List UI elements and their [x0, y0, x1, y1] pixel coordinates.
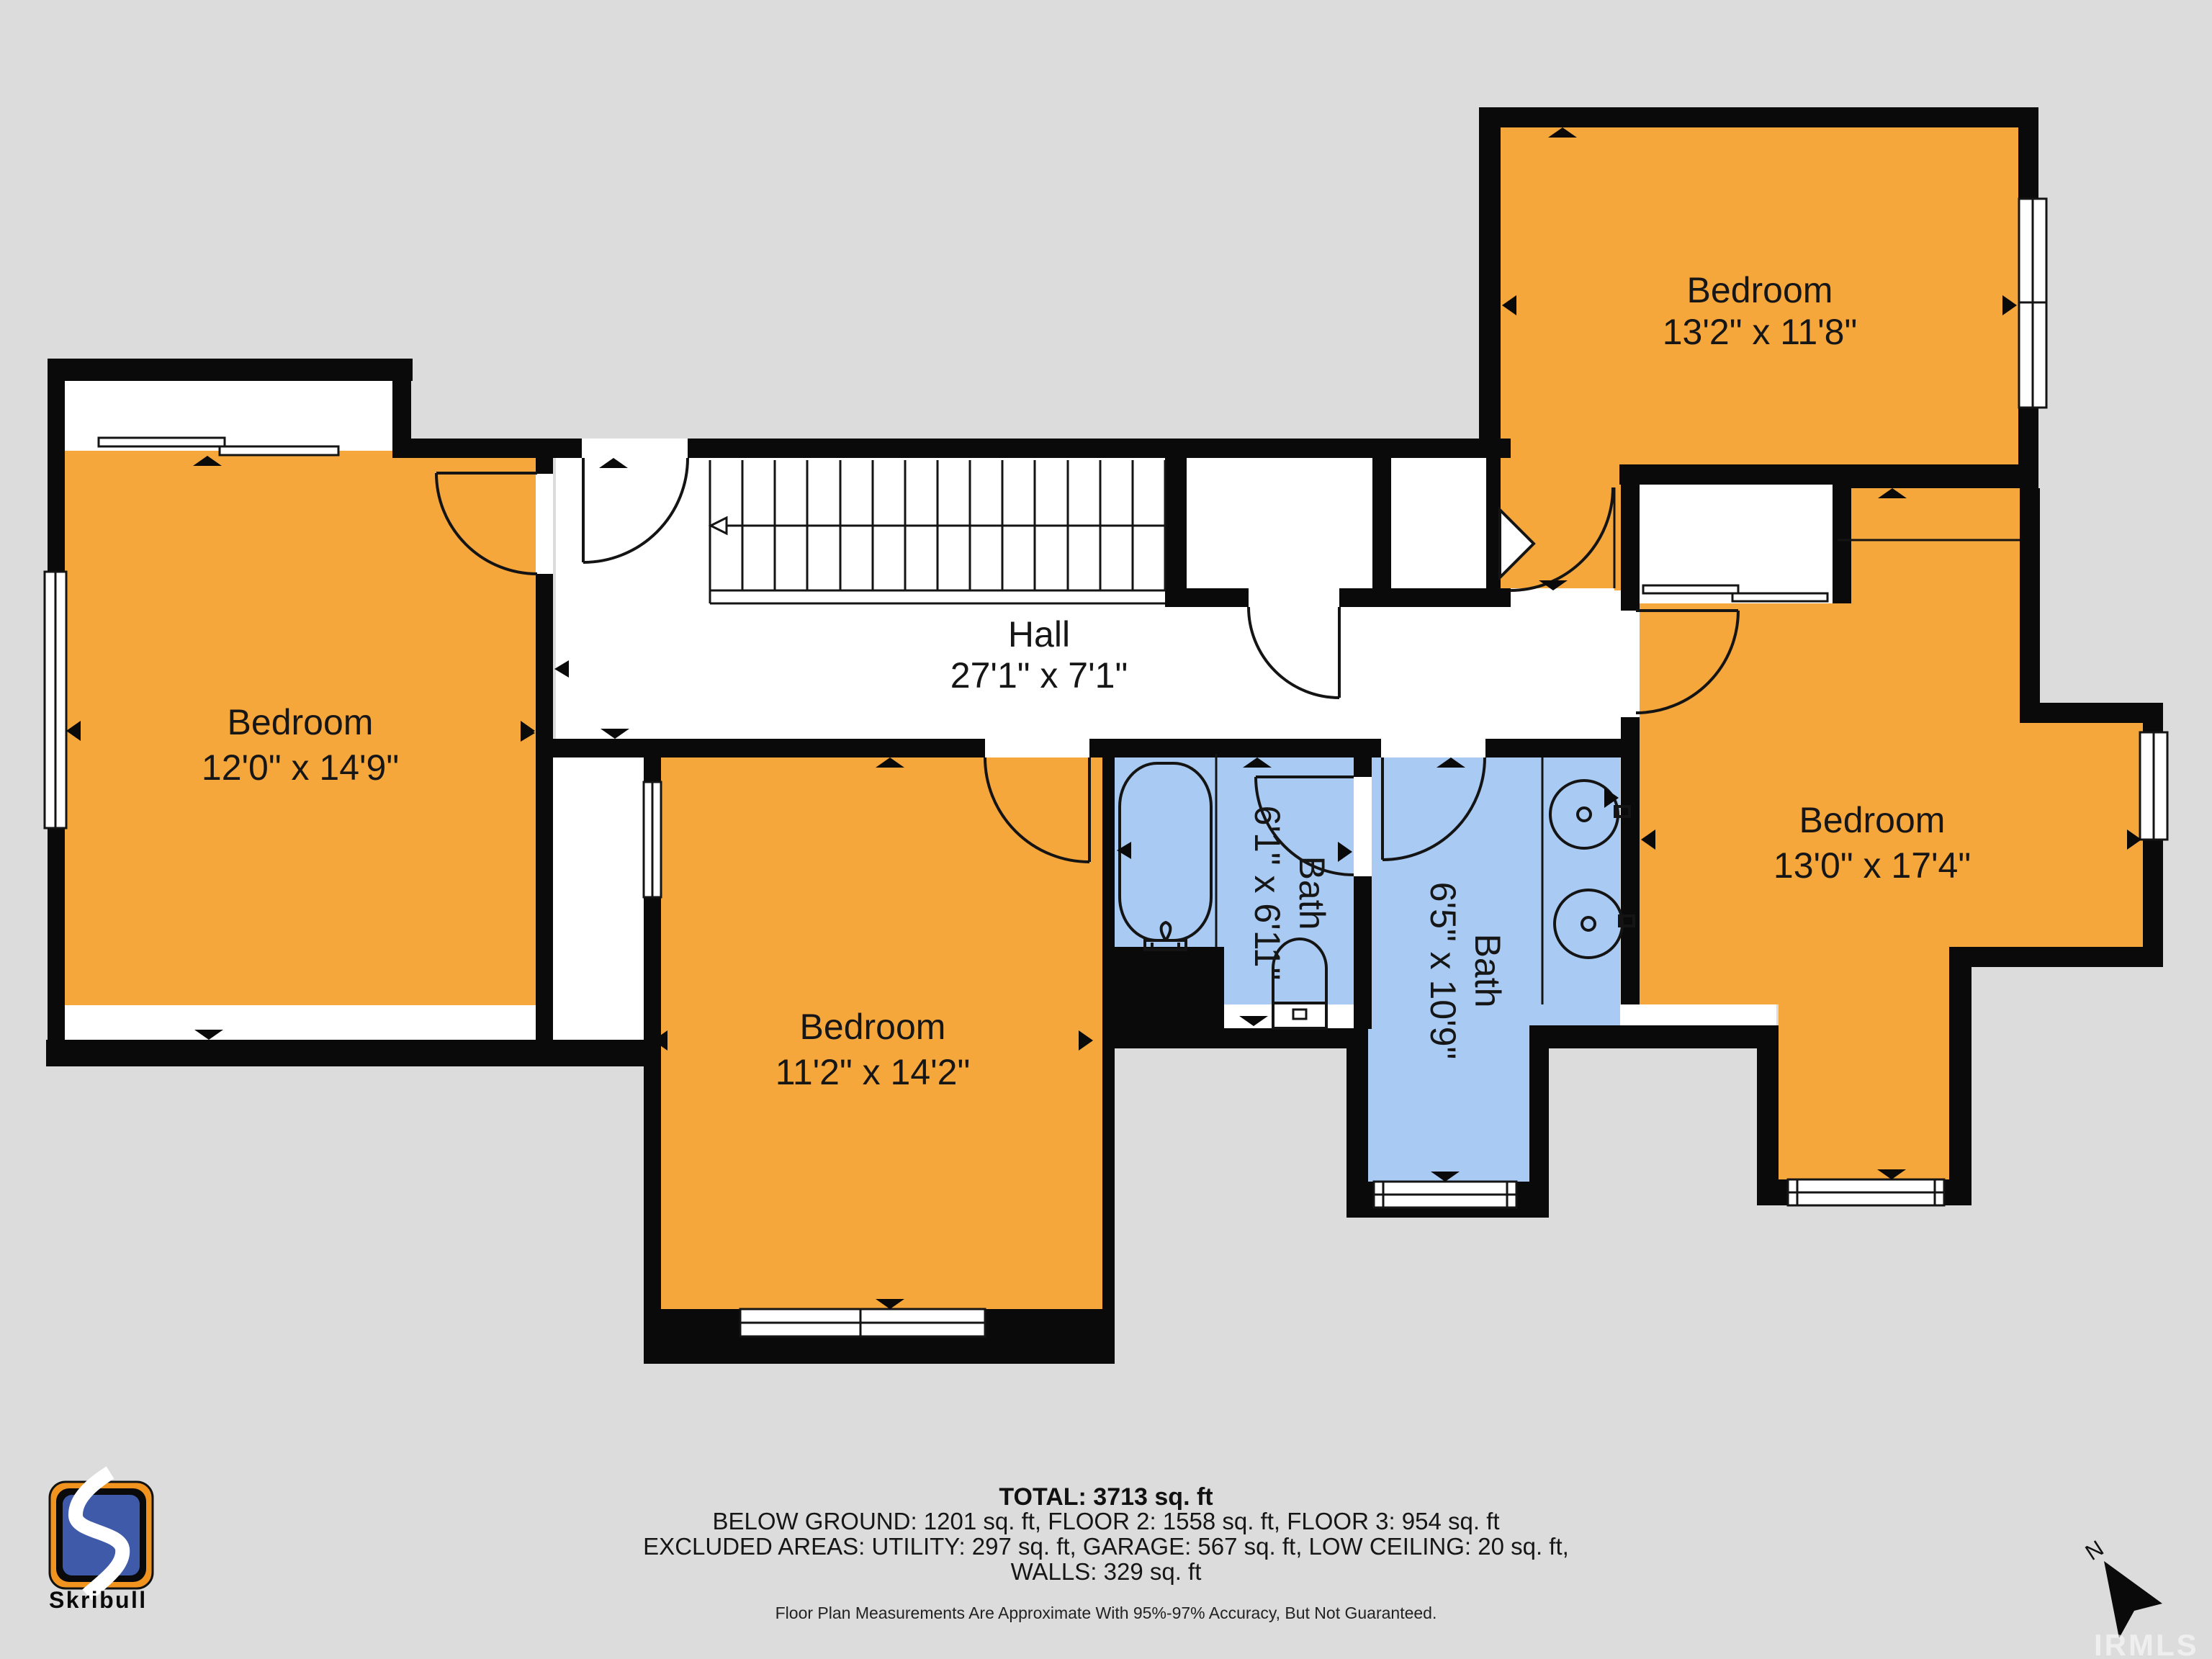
svg-text:Skribull: Skribull: [49, 1587, 148, 1613]
svg-text:12'0" x 14'9": 12'0" x 14'9": [202, 747, 399, 788]
svg-text:Floor Plan Measurements Are Ap: Floor Plan Measurements Are Approximate …: [775, 1604, 1437, 1622]
svg-text:Bedroom: Bedroom: [800, 1007, 946, 1047]
svg-text:11'2" x 14'2": 11'2" x 14'2": [775, 1052, 971, 1092]
svg-text:27'1" x 7'1": 27'1" x 7'1": [950, 655, 1128, 696]
svg-text:13'0" x 17'4": 13'0" x 17'4": [1773, 845, 1971, 886]
svg-text:EXCLUDED AREAS: UTILITY: 297 s: EXCLUDED AREAS: UTILITY: 297 sq. ft, GAR…: [643, 1533, 1569, 1560]
svg-text:6'5" x 10'9": 6'5" x 10'9": [1423, 882, 1463, 1059]
svg-text:Bath: Bath: [1467, 934, 1508, 1008]
svg-text:Bath: Bath: [1292, 856, 1332, 930]
svg-text:Bedroom: Bedroom: [1799, 800, 1946, 840]
svg-text:13'2" x 11'8": 13'2" x 11'8": [1663, 312, 1858, 352]
svg-text:Bedroom: Bedroom: [1687, 270, 1833, 310]
svg-text:Hall: Hall: [1008, 614, 1070, 655]
svg-text:6'1" x 6'11": 6'1" x 6'11": [1247, 806, 1287, 981]
svg-text:BELOW GROUND: 1201 sq. ft, FLO: BELOW GROUND: 1201 sq. ft, FLOOR 2: 1558…: [712, 1508, 1499, 1534]
svg-text:Bedroom: Bedroom: [228, 702, 374, 742]
svg-text:WALLS: 329 sq. ft: WALLS: 329 sq. ft: [1011, 1558, 1202, 1585]
svg-text:IRMLS: IRMLS: [2094, 1628, 2199, 1659]
svg-text:TOTAL: 3713 sq. ft: TOTAL: 3713 sq. ft: [999, 1483, 1213, 1511]
